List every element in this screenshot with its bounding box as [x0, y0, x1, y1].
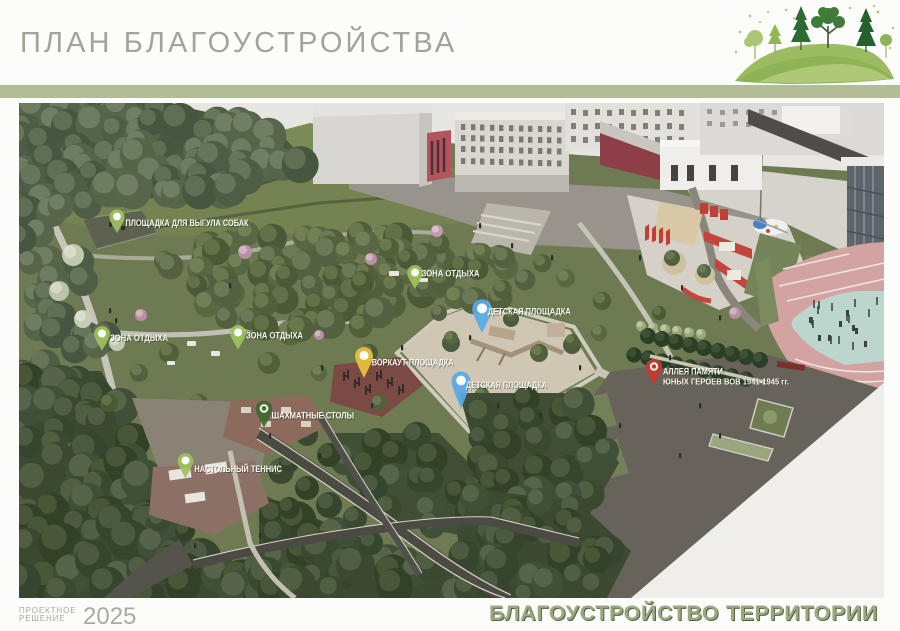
svg-text:АЛЛЕЯ ПАМЯТИ: АЛЛЕЯ ПАМЯТИ	[663, 367, 723, 377]
svg-text:ШАХМАТНЫЕ СТОЛЫ: ШАХМАТНЫЕ СТОЛЫ	[272, 411, 355, 422]
svg-text:ЗОНА ОТДЫХА: ЗОНА ОТДЫХА	[246, 331, 303, 342]
svg-text:ПЛОЩАДКА ДЛЯ ВЫГУЛА СОБАК: ПЛОЩАДКА ДЛЯ ВЫГУЛА СОБАК	[126, 218, 249, 229]
svg-text:ЗОНА ОТДЫХА: ЗОНА ОТДЫХА	[422, 269, 480, 280]
svg-text:ДЕТСКАЯ ПЛОЩАДКА: ДЕТСКАЯ ПЛОЩАДКА	[466, 380, 547, 391]
svg-text:ВОРКАУТ-ПЛОЩАДКА: ВОРКАУТ-ПЛОЩАДКА	[372, 358, 454, 369]
svg-text:ЮНЫХ ГЕРОЕВ ВОВ 1941-1945 гг.: ЮНЫХ ГЕРОЕВ ВОВ 1941-1945 гг.	[663, 376, 789, 386]
svg-text:ЗОНА ОТДЫХА: ЗОНА ОТДЫХА	[110, 333, 168, 344]
svg-text:НАСТОЛЬНЫЙ ТЕННИС: НАСТОЛЬНЫЙ ТЕННИС	[194, 463, 282, 475]
svg-text:ДЕТСКАЯ ПЛОЩАДКА: ДЕТСКАЯ ПЛОЩАДКА	[488, 307, 571, 318]
